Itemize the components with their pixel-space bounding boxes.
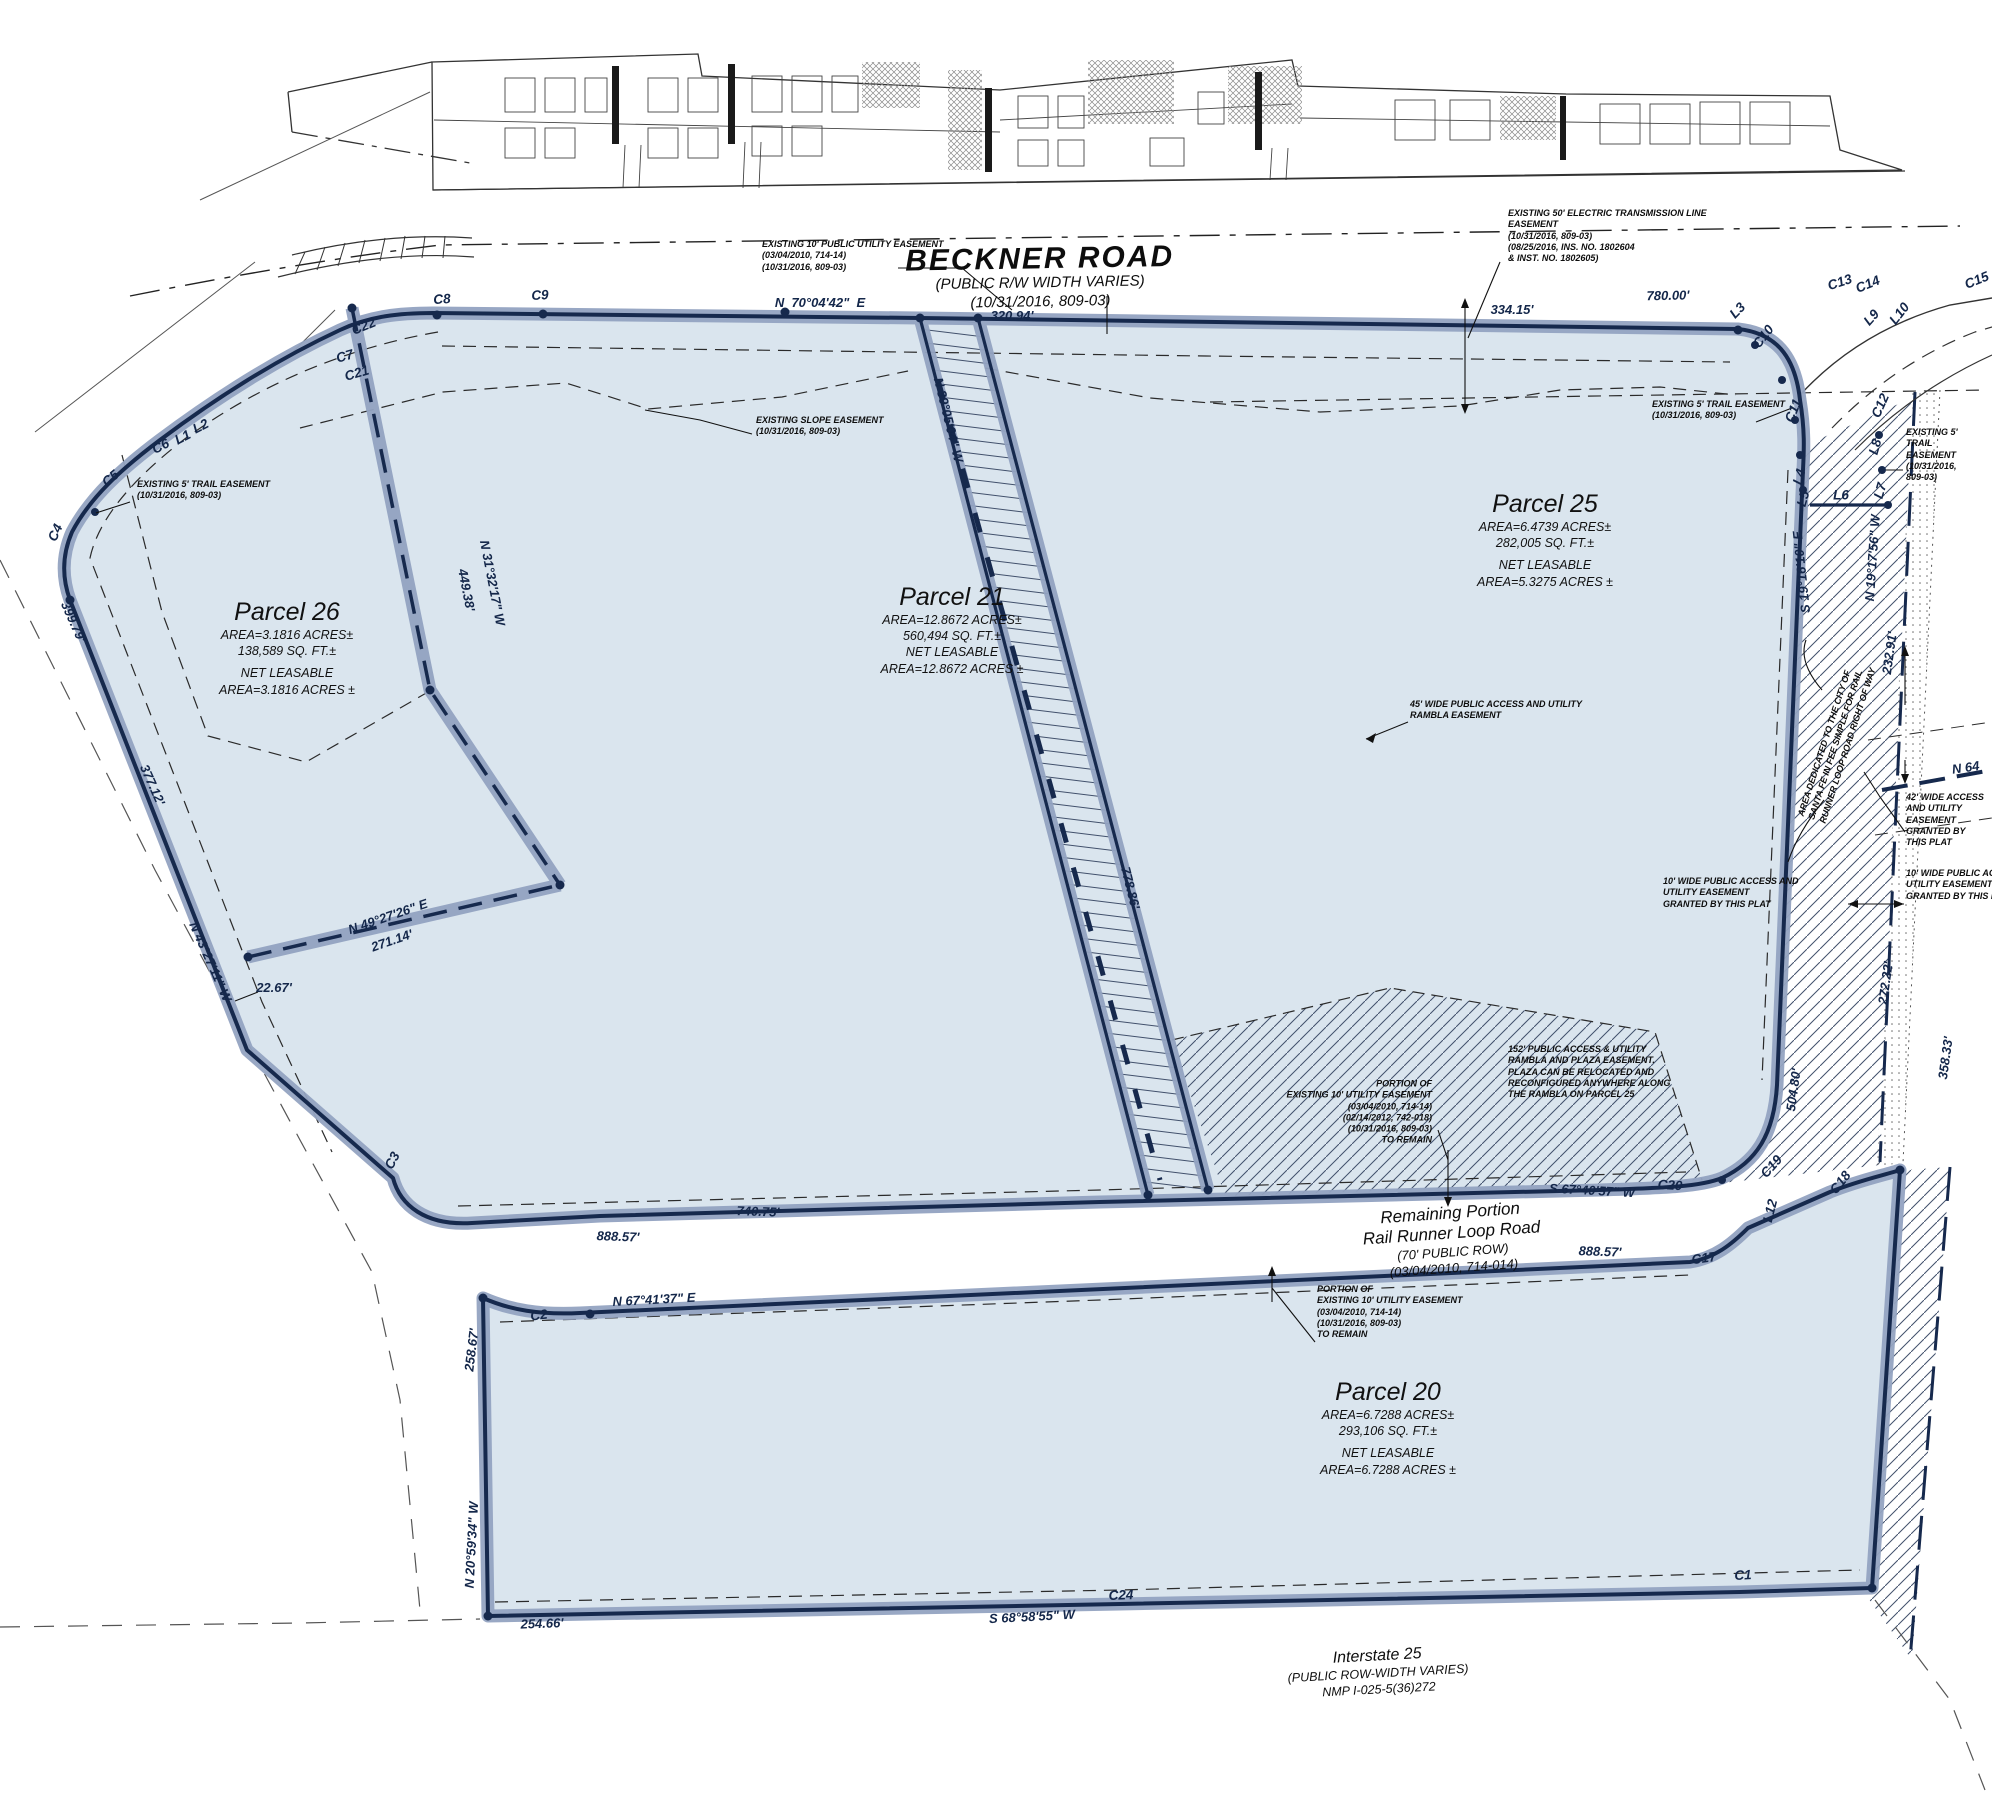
parcel-20-fill	[483, 1170, 1900, 1616]
plat-drawing	[0, 0, 1992, 1804]
plat-map-canvas: EXISTING 10' PUBLIC UTILITY EASEMENT (03…	[0, 0, 1992, 1804]
subdivision-block	[432, 54, 1902, 190]
